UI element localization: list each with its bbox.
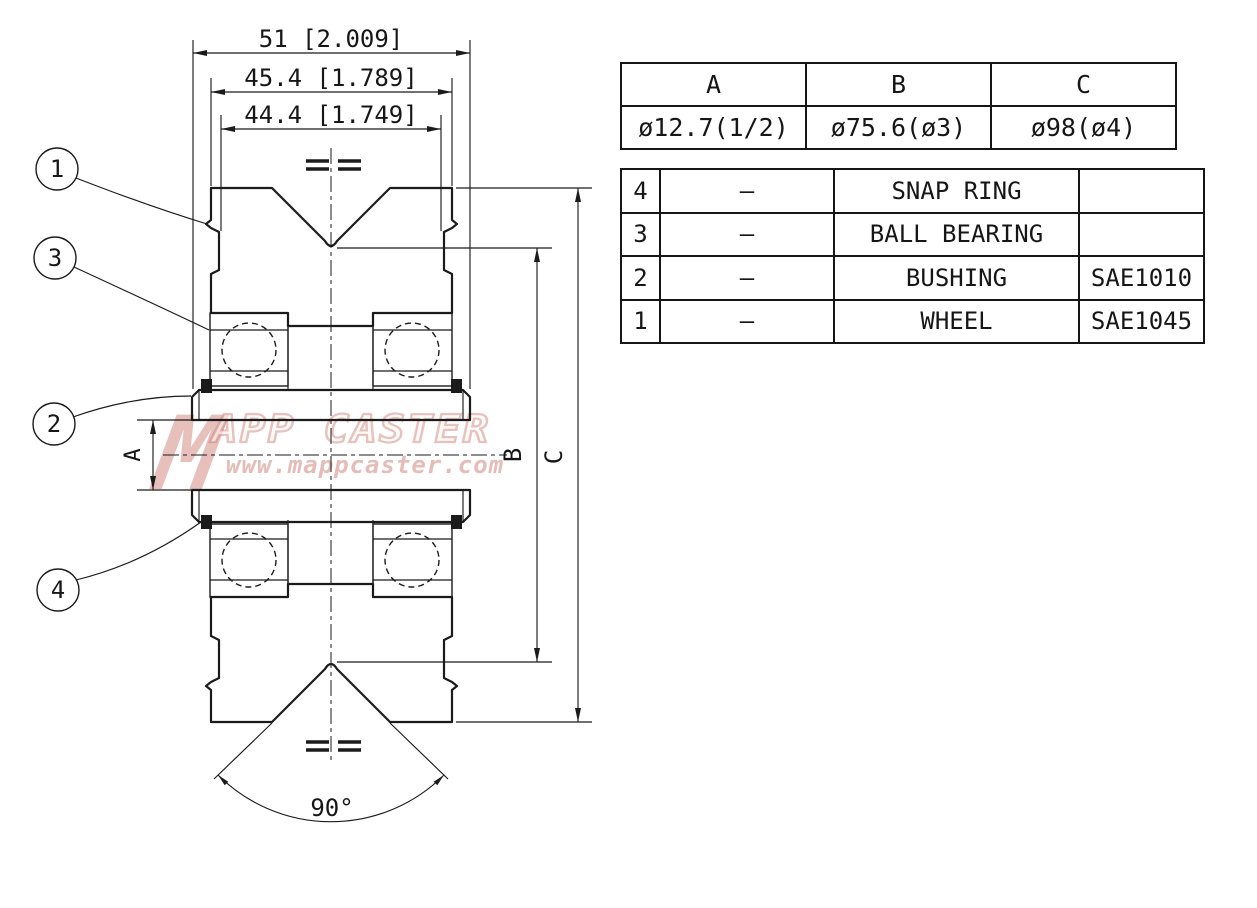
- bearing-ball: [385, 323, 439, 377]
- size-table-value-c: ø98(ø4): [992, 107, 1175, 148]
- balloon-ball-bearing: 3: [34, 237, 209, 330]
- dim-outer-c-label: C: [540, 450, 568, 464]
- balloon-wheel: 1: [36, 148, 207, 224]
- part-no: 1: [622, 301, 659, 343]
- balloon-bushing-number: 2: [47, 410, 61, 438]
- dim-bore-a: A: [121, 420, 192, 490]
- balloon-snap-ring: 4: [37, 522, 201, 611]
- part-material: SAE1045: [1080, 301, 1203, 343]
- bearing-ball: [222, 533, 276, 587]
- size-table-header-a: A: [622, 64, 805, 105]
- dim-bore-a-label: A: [121, 448, 146, 461]
- part-material: [1080, 170, 1203, 212]
- part-no: 2: [622, 257, 659, 299]
- balloon-ball-bearing-number: 3: [48, 244, 62, 272]
- part-name: SNAP RING: [835, 170, 1078, 212]
- drawing-sheet: M APP CASTER www.mappcaster.com: [0, 0, 1257, 908]
- dim-bearing-width-label: 44.4 [1.749]: [244, 101, 417, 129]
- parts-table: 4 – SNAP RING 3 – BALL BEARING 2 – BUSHI…: [620, 168, 1205, 344]
- part-qty: –: [661, 257, 833, 299]
- size-table: A B C ø12.7(1/2) ø75.6(ø3) ø98(ø4): [620, 62, 1177, 150]
- size-table-header-c: C: [992, 64, 1175, 105]
- part-name: WHEEL: [835, 301, 1078, 343]
- balloon-snap-ring-number: 4: [51, 576, 65, 604]
- groove-angle-label: 90°: [310, 794, 353, 822]
- dim-groove-b-label: B: [499, 448, 527, 462]
- part-qty: –: [661, 214, 833, 256]
- size-table-value-a: ø12.7(1/2): [622, 107, 805, 148]
- bearing-ball: [385, 533, 439, 587]
- part-no: 3: [622, 214, 659, 256]
- part-qty: –: [661, 170, 833, 212]
- centerlines: [163, 148, 507, 760]
- part-no: 4: [622, 170, 659, 212]
- part-material: SAE1010: [1080, 257, 1203, 299]
- dim-overall-width-label: 51 [2.009]: [259, 25, 404, 53]
- dim-hub-width-label: 45.4 [1.789]: [244, 64, 417, 92]
- part-qty: –: [661, 301, 833, 343]
- part-name: BALL BEARING: [835, 214, 1078, 256]
- bearing-ball: [222, 323, 276, 377]
- size-table-value-b: ø75.6(ø3): [807, 107, 990, 148]
- part-name: BUSHING: [835, 257, 1078, 299]
- part-material: [1080, 214, 1203, 256]
- size-table-header-b: B: [807, 64, 990, 105]
- balloon-wheel-number: 1: [50, 155, 64, 183]
